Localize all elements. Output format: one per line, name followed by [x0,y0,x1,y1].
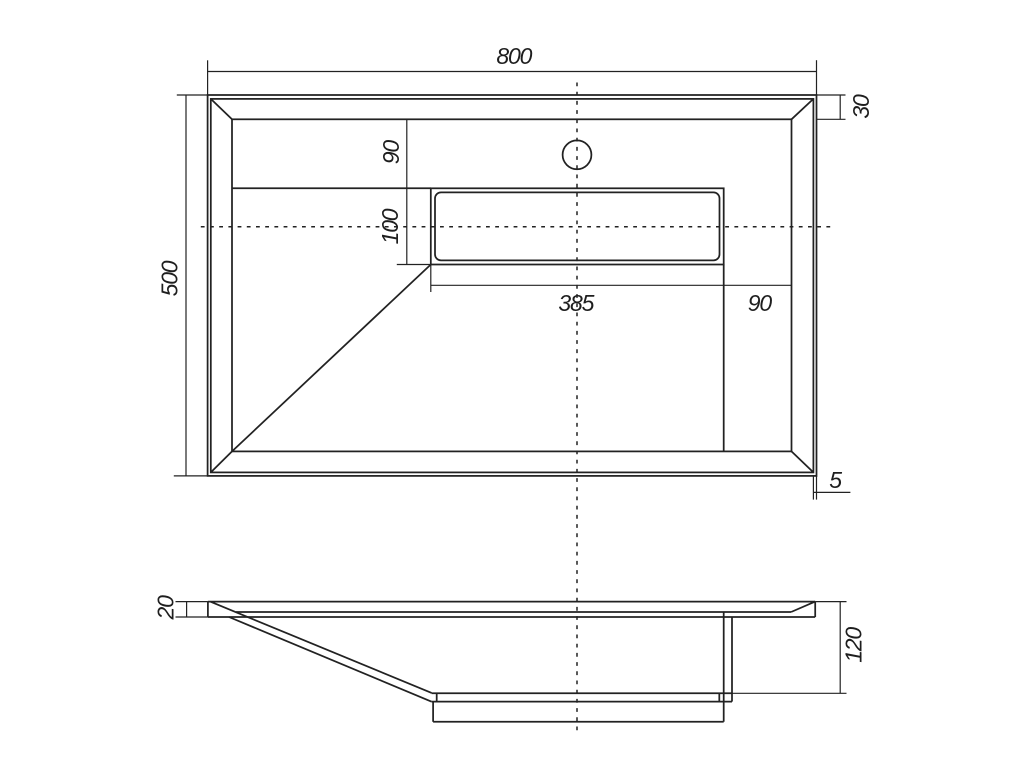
svg-text:20: 20 [152,595,178,621]
svg-text:100: 100 [377,208,403,244]
svg-text:90: 90 [748,290,773,316]
svg-text:500: 500 [156,260,182,296]
svg-text:30: 30 [848,94,874,119]
svg-text:5: 5 [829,467,842,493]
svg-text:385: 385 [558,290,594,316]
svg-text:120: 120 [841,627,867,663]
svg-text:800: 800 [496,43,532,69]
svg-text:90: 90 [378,140,404,165]
